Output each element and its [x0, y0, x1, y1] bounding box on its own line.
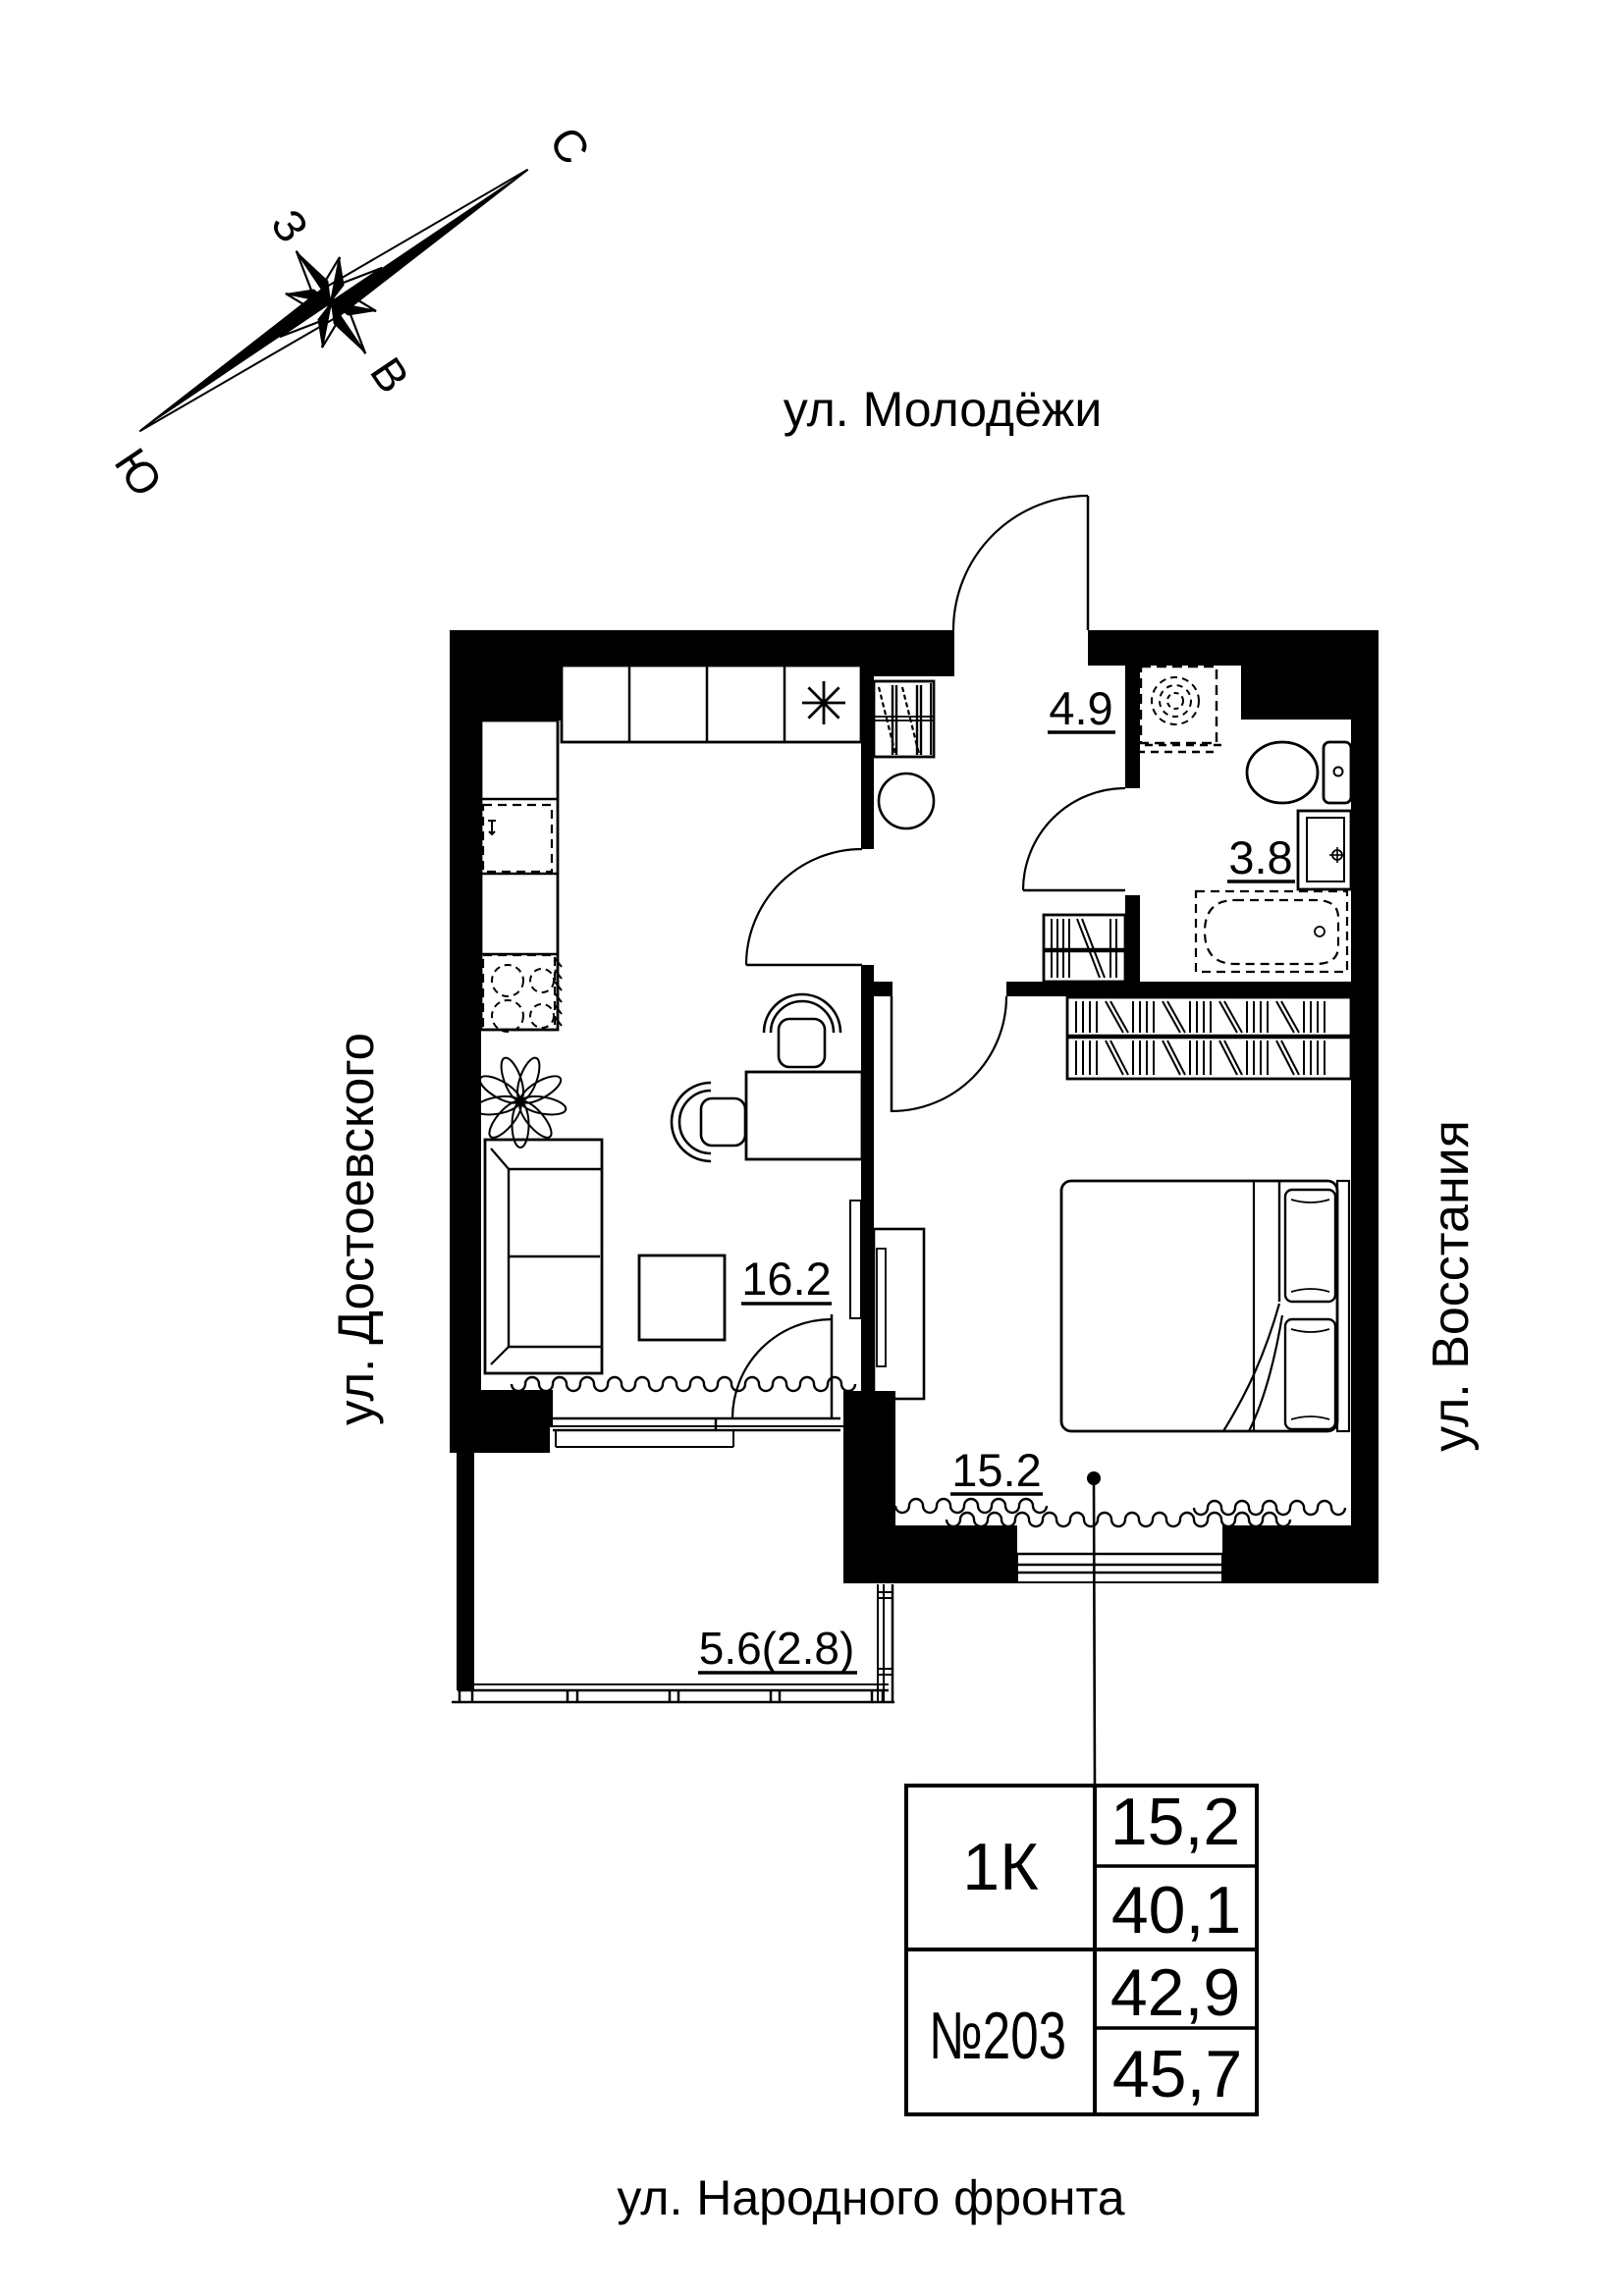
svg-text:40,1: 40,1 — [1111, 1873, 1241, 1948]
svg-text:ул. Молодёжи: ул. Молодёжи — [784, 382, 1103, 437]
svg-text:ул. Восстания: ул. Восстания — [1423, 1120, 1480, 1452]
svg-text:5.6(2.8): 5.6(2.8) — [699, 1623, 855, 1674]
svg-text:15.2: 15.2 — [951, 1444, 1041, 1496]
svg-text:15,2: 15,2 — [1110, 1785, 1240, 1859]
svg-text:45,7: 45,7 — [1112, 2037, 1242, 2111]
svg-text:1К: 1К — [962, 1830, 1039, 1904]
svg-text:ул. Народного фронта: ул. Народного фронта — [617, 2170, 1124, 2225]
svg-text:№203: №203 — [929, 1999, 1066, 2073]
svg-text:ул. Достоевского: ул. Достоевского — [328, 1033, 384, 1425]
svg-text:16.2: 16.2 — [741, 1253, 831, 1305]
svg-text:4.9: 4.9 — [1049, 682, 1112, 734]
svg-text:42,9: 42,9 — [1110, 1955, 1240, 2030]
svg-text:3.8: 3.8 — [1228, 831, 1292, 883]
